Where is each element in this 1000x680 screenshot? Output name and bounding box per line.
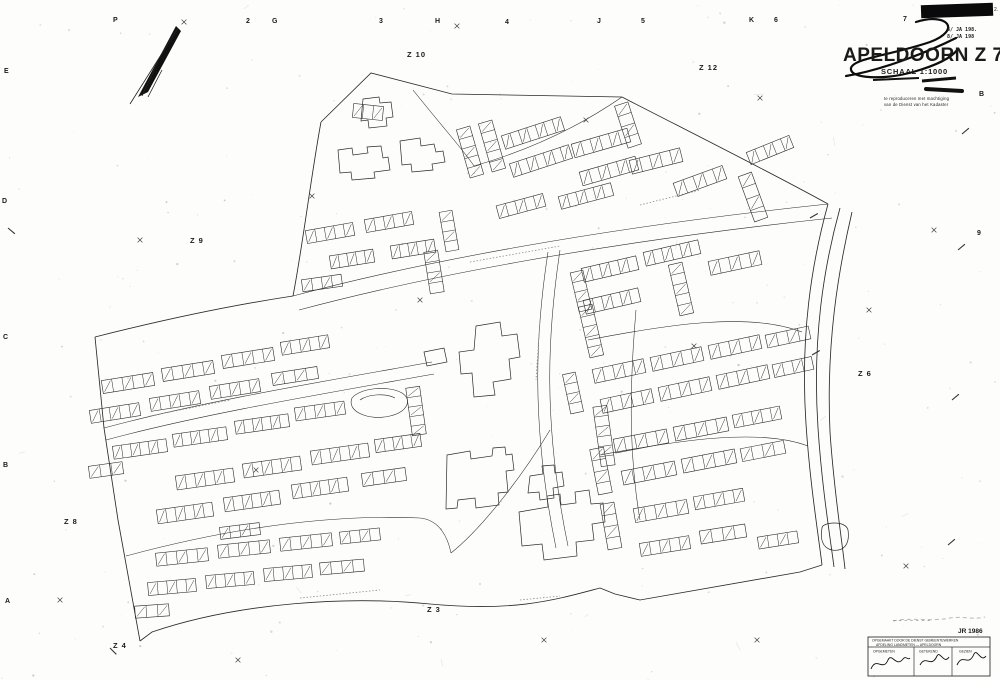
unit-hatch	[585, 326, 597, 336]
unit-divider	[724, 451, 727, 465]
unit-hatch	[464, 147, 477, 157]
unit-hatch	[675, 427, 685, 439]
table-col-label-3: GEZIEN	[959, 650, 972, 654]
scan-speck	[139, 645, 141, 647]
scan-speck	[362, 532, 363, 533]
unit-hatch	[601, 264, 610, 276]
scan-speck	[2, 678, 3, 679]
unit-divider	[747, 369, 750, 383]
scan-speck	[282, 332, 284, 334]
unit-divider	[505, 203, 508, 216]
unit-hatch	[535, 195, 544, 206]
unit-divider	[410, 415, 424, 417]
unit-divider	[770, 408, 772, 421]
unit-divider	[329, 448, 331, 462]
building-row	[740, 440, 786, 461]
unit-hatch	[589, 346, 601, 356]
unit-divider	[243, 420, 245, 433]
unit-hatch	[594, 369, 604, 381]
unit-divider	[749, 337, 752, 351]
building-row	[757, 531, 798, 549]
unit-hatch	[696, 423, 706, 435]
unit-divider	[408, 405, 422, 407]
scan-speck	[272, 545, 274, 547]
scan-speck	[778, 294, 779, 295]
grid-ref-top: G	[272, 18, 278, 25]
scan-speck	[65, 529, 67, 531]
unit-divider	[728, 341, 731, 355]
unit-hatch	[219, 546, 227, 557]
unit-hatch	[264, 349, 273, 360]
fine-print-line2: van de Dienst van het Kadaster	[884, 102, 949, 107]
unit-hatch	[592, 138, 601, 150]
scan-speck	[880, 109, 882, 111]
map-geometry-layer	[8, 20, 969, 663]
scan-speck	[224, 199, 226, 201]
unit-hatch	[282, 343, 290, 354]
unit-divider	[301, 484, 303, 498]
unit-hatch	[225, 498, 233, 510]
scan-speck	[621, 391, 623, 393]
unit-divider	[252, 463, 254, 477]
parcel-boundary	[622, 97, 828, 204]
scan-speck	[501, 501, 502, 502]
scan-speck	[829, 574, 831, 576]
unit-divider	[441, 220, 454, 222]
building-row	[219, 523, 260, 540]
unit-hatch	[296, 370, 306, 380]
scan-speck	[570, 20, 571, 21]
pond-outline	[351, 388, 407, 417]
scan-speck	[753, 501, 755, 503]
unit-divider	[372, 472, 374, 485]
unit-divider	[629, 290, 632, 304]
large-building-outline	[459, 322, 520, 397]
unit-hatch	[704, 455, 714, 467]
unit-divider	[599, 264, 602, 278]
unit-divider	[166, 552, 167, 565]
unit-divider	[319, 481, 321, 495]
unit-hatch	[665, 463, 675, 475]
grid-ref-top: H	[435, 18, 441, 25]
scan-speck	[513, 199, 515, 201]
scan-speck	[543, 594, 544, 595]
unit-divider	[751, 412, 753, 425]
unit-hatch	[361, 531, 369, 541]
unit-divider	[612, 365, 615, 379]
unit-divider	[190, 432, 192, 445]
unit-hatch	[392, 246, 399, 257]
building-row-outline	[88, 462, 123, 479]
unit-hatch	[150, 442, 157, 453]
unit-hatch	[734, 490, 743, 501]
unit-divider	[349, 531, 350, 543]
scan-speck	[585, 473, 587, 475]
survey-cross	[310, 194, 315, 199]
zone-label: Z 9	[190, 236, 204, 245]
unit-divider	[649, 155, 652, 169]
road-line	[299, 218, 832, 310]
unit-divider	[702, 173, 707, 186]
building-row	[291, 477, 348, 499]
unit-hatch	[404, 213, 412, 224]
unit-hatch	[560, 196, 568, 207]
unit-divider	[252, 351, 254, 364]
building-row	[209, 379, 260, 400]
unit-divider	[184, 506, 186, 520]
building-row	[135, 604, 170, 618]
building-row	[390, 239, 435, 259]
unit-divider	[624, 437, 627, 451]
scan-speck	[39, 633, 41, 635]
unit-divider	[601, 296, 604, 310]
unit-divider	[763, 146, 768, 158]
unit-divider	[383, 438, 385, 451]
unit-divider	[751, 447, 753, 460]
unit-hatch	[753, 411, 761, 422]
unit-hatch	[226, 575, 233, 586]
scan-speck	[854, 469, 855, 470]
unit-hatch	[210, 430, 217, 441]
scan-speck	[456, 614, 457, 615]
scan-speck	[723, 22, 725, 24]
scan-speck	[105, 571, 106, 572]
unit-divider	[185, 475, 187, 489]
scan-speck	[226, 87, 228, 89]
survey-cross	[182, 20, 187, 25]
unit-hatch	[718, 375, 728, 387]
scan-speck	[109, 306, 110, 307]
scan-hairline	[902, 512, 909, 519]
unit-divider	[283, 372, 285, 384]
unit-divider	[320, 450, 322, 464]
unit-divider	[252, 419, 254, 432]
unit-hatch	[774, 365, 783, 376]
scan-speck	[471, 300, 473, 302]
unit-divider	[217, 428, 219, 441]
unit-divider	[711, 529, 713, 542]
unit-hatch	[158, 510, 166, 522]
unit-divider	[599, 136, 603, 149]
scan-speck	[32, 674, 34, 676]
unit-hatch	[734, 415, 742, 426]
fine-print-line1: te reproduceren met machtiging	[884, 96, 950, 101]
scan-speck	[117, 165, 119, 167]
building-row-outline	[509, 145, 572, 177]
unit-divider	[349, 446, 351, 460]
unit-divider	[680, 244, 683, 258]
unit-hatch	[730, 341, 740, 353]
scan-speck	[70, 396, 72, 398]
unit-hatch	[132, 444, 139, 455]
unit-hatch	[321, 564, 330, 574]
building-row	[155, 548, 208, 566]
large-building-outline	[446, 447, 514, 509]
table-signature	[871, 658, 910, 669]
unit-divider	[726, 373, 729, 387]
unit-divider	[665, 503, 667, 517]
unit-hatch	[740, 174, 753, 186]
scan-speck	[920, 546, 921, 547]
unit-divider	[148, 441, 150, 454]
scan-speck	[737, 364, 739, 366]
unit-divider	[122, 377, 124, 390]
scan-speck	[120, 32, 122, 34]
zone-label: Z 8	[64, 517, 78, 526]
scan-speck	[858, 338, 859, 339]
unit-hatch	[174, 435, 181, 446]
unit-hatch	[296, 408, 304, 419]
scan-speck	[501, 98, 502, 99]
building-row	[456, 126, 483, 178]
unit-divider	[692, 457, 695, 471]
unit-divider	[142, 374, 144, 387]
unit-divider	[618, 260, 621, 274]
unit-divider	[172, 367, 174, 380]
unit-divider	[755, 149, 760, 161]
unit-hatch	[772, 408, 780, 419]
scan-speck	[450, 515, 451, 516]
unit-divider	[331, 562, 332, 574]
scan-speck	[61, 346, 63, 348]
unit-hatch	[245, 573, 252, 584]
unit-divider	[776, 333, 779, 346]
unit-divider	[618, 131, 622, 144]
scan-hairline	[819, 416, 826, 421]
unit-divider	[358, 444, 360, 458]
scan-speck	[121, 615, 122, 616]
unit-divider	[649, 542, 651, 555]
building-row	[668, 262, 693, 316]
survey-cross	[755, 638, 760, 643]
unit-hatch	[635, 361, 645, 373]
unit-divider	[399, 245, 401, 258]
scan-speck	[395, 309, 397, 311]
unit-divider	[234, 573, 235, 586]
zone-label: Z 4	[113, 641, 127, 650]
parcel-boundary	[293, 122, 321, 296]
unit-hatch	[195, 505, 203, 517]
grid-ref-top: 2	[246, 18, 250, 25]
scan-speck	[147, 158, 148, 159]
scan-speck	[783, 296, 785, 298]
scan-speck	[266, 675, 267, 676]
unit-hatch	[91, 411, 99, 422]
scan-speck	[33, 573, 35, 575]
unit-divider	[610, 294, 613, 308]
north-arrow-stroke	[142, 62, 158, 96]
scan-speck	[39, 24, 41, 26]
scan-speck	[978, 543, 979, 544]
grid-ref-left: B	[3, 462, 9, 469]
unit-divider	[787, 533, 789, 545]
scan-speck	[143, 341, 145, 343]
scan-speck	[970, 361, 972, 363]
unit-hatch	[151, 399, 159, 410]
scan-speck	[664, 346, 666, 348]
unit-hatch	[323, 277, 331, 287]
unit-divider	[239, 382, 241, 395]
scan-speck	[58, 279, 59, 280]
building-row	[693, 488, 744, 509]
unit-divider	[584, 190, 587, 203]
unit-hatch	[374, 107, 382, 119]
building-row	[746, 135, 794, 164]
unit-hatch	[211, 387, 219, 398]
unit-hatch	[385, 471, 394, 482]
building-row	[156, 502, 213, 524]
unit-divider	[197, 549, 198, 562]
unit-divider	[204, 472, 206, 486]
unit-hatch	[144, 374, 153, 385]
unit-divider	[324, 227, 326, 240]
unit-hatch	[779, 534, 787, 544]
unit-divider	[733, 526, 735, 539]
scan-speck	[328, 373, 329, 374]
unit-divider	[249, 380, 251, 393]
unit-hatch	[316, 406, 324, 417]
scan-speck	[403, 8, 405, 10]
unit-divider	[238, 543, 239, 556]
unit-hatch	[651, 155, 661, 167]
scan-speck	[122, 278, 124, 280]
scan-speck	[127, 601, 129, 603]
unit-divider	[169, 395, 171, 408]
parcel-boundary	[140, 588, 600, 641]
unit-divider	[393, 215, 395, 228]
scan-speck	[149, 33, 151, 35]
scan-speck	[418, 636, 419, 637]
scan-speck	[69, 95, 70, 96]
unit-divider	[659, 540, 661, 553]
building-row	[305, 222, 355, 243]
scan-hairline	[405, 593, 411, 597]
unit-divider	[139, 443, 141, 456]
unit-divider	[588, 170, 592, 183]
scan-speck	[129, 286, 130, 287]
unit-divider	[524, 198, 527, 211]
building-row	[600, 389, 654, 414]
scan-speck	[564, 466, 565, 467]
scan-speck	[167, 212, 168, 213]
building-row	[406, 386, 427, 435]
scan-speck	[390, 607, 392, 609]
year-label: JR 1986	[958, 628, 983, 635]
scan-speck	[620, 657, 621, 658]
unit-hatch	[331, 449, 339, 461]
scan-speck	[940, 304, 941, 305]
unit-hatch	[623, 471, 633, 483]
unit-divider	[660, 355, 663, 369]
unit-hatch	[663, 248, 672, 260]
street-name-microtext	[640, 190, 700, 205]
unit-divider	[186, 579, 187, 592]
unit-divider	[318, 336, 320, 349]
map-canvas: P2G3H4J5K67EDCBAB9Z 10Z 12Z 9Z 6Z 8Z 3Z …	[0, 0, 1000, 680]
scan-speck	[344, 392, 345, 393]
unit-hatch	[715, 493, 724, 504]
unit-divider	[592, 298, 595, 312]
zone-label: Z 6	[858, 369, 872, 378]
unit-divider	[223, 469, 225, 483]
unit-divider	[787, 331, 790, 344]
unit-divider	[716, 419, 719, 433]
building-row	[772, 356, 814, 377]
edge-tick	[810, 214, 818, 219]
unit-hatch	[336, 403, 344, 414]
unit-divider	[290, 537, 291, 550]
unit-hatch	[595, 407, 607, 415]
scan-speck	[246, 575, 247, 576]
unit-divider	[560, 148, 564, 161]
unit-divider	[341, 561, 342, 573]
scan-speck	[226, 156, 227, 157]
unit-divider	[402, 436, 404, 449]
unit-hatch	[618, 161, 627, 173]
scan-speck	[54, 480, 55, 481]
unit-hatch	[366, 251, 373, 262]
scan-speck	[282, 381, 283, 382]
scan-speck	[924, 566, 925, 567]
grid-ref-left: A	[5, 598, 11, 605]
scan-speck	[546, 123, 547, 124]
grid-ref-left: E	[4, 68, 9, 75]
scan-speck	[793, 177, 794, 178]
unit-divider	[411, 435, 413, 448]
unit-divider	[232, 354, 234, 367]
unit-hatch	[284, 568, 291, 579]
unit-hatch	[583, 268, 592, 280]
scan-speck	[73, 131, 74, 132]
unit-divider	[270, 416, 272, 429]
building-row	[101, 373, 154, 394]
scan-speck	[835, 192, 837, 194]
unit-divider	[279, 415, 281, 428]
scan-speck	[329, 502, 331, 504]
unit-divider	[739, 255, 742, 269]
unit-divider	[606, 536, 620, 538]
faint-note: – – – – – – –	[893, 618, 931, 623]
unit-hatch	[614, 365, 624, 377]
unit-hatch	[621, 292, 630, 304]
unit-hatch	[596, 471, 608, 481]
road-line	[631, 310, 640, 520]
unit-divider	[596, 481, 610, 484]
table-signature	[957, 653, 986, 665]
unit-hatch	[111, 408, 119, 419]
unit-hatch	[112, 463, 122, 473]
title-block: 2. 8/ JA 198. 8/ JA 198 APELDOORN Z 7 SC…	[843, 3, 1000, 107]
unit-divider	[159, 397, 161, 410]
unit-divider	[311, 278, 313, 290]
scan-speck	[158, 352, 159, 353]
unit-divider	[259, 541, 260, 554]
scan-speck	[884, 344, 885, 345]
unit-divider	[705, 421, 708, 435]
scan-speck	[341, 327, 343, 329]
grid-ref-top: 7	[903, 16, 907, 23]
building-row	[650, 347, 704, 372]
unit-hatch	[469, 166, 482, 176]
unit-divider	[321, 534, 322, 547]
zone-label: Z 12	[699, 63, 718, 72]
parcel-boundary	[95, 296, 293, 337]
unit-hatch	[207, 576, 214, 587]
unit-hatch	[159, 605, 168, 615]
unit-hatch	[410, 407, 422, 415]
unit-hatch	[670, 264, 682, 274]
unit-hatch	[788, 330, 798, 341]
